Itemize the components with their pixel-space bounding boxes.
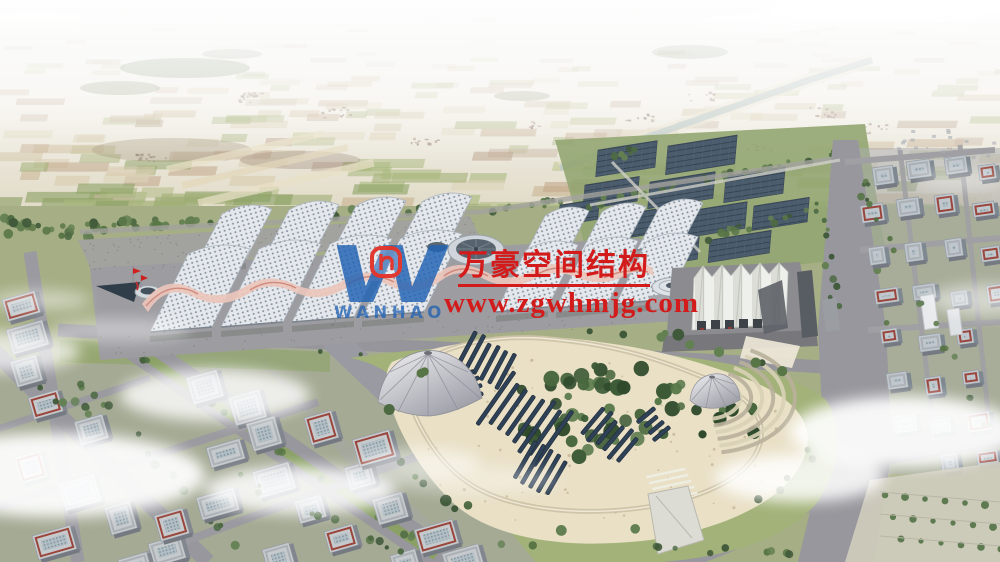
- small-dome: [427, 242, 447, 252]
- central-hub-dome: [448, 235, 504, 265]
- aerial-architectural-rendering: W WANHAO 万豪空间结构 www.zgwhmjg.com: [0, 0, 1000, 562]
- rendered-scene: [0, 0, 1000, 562]
